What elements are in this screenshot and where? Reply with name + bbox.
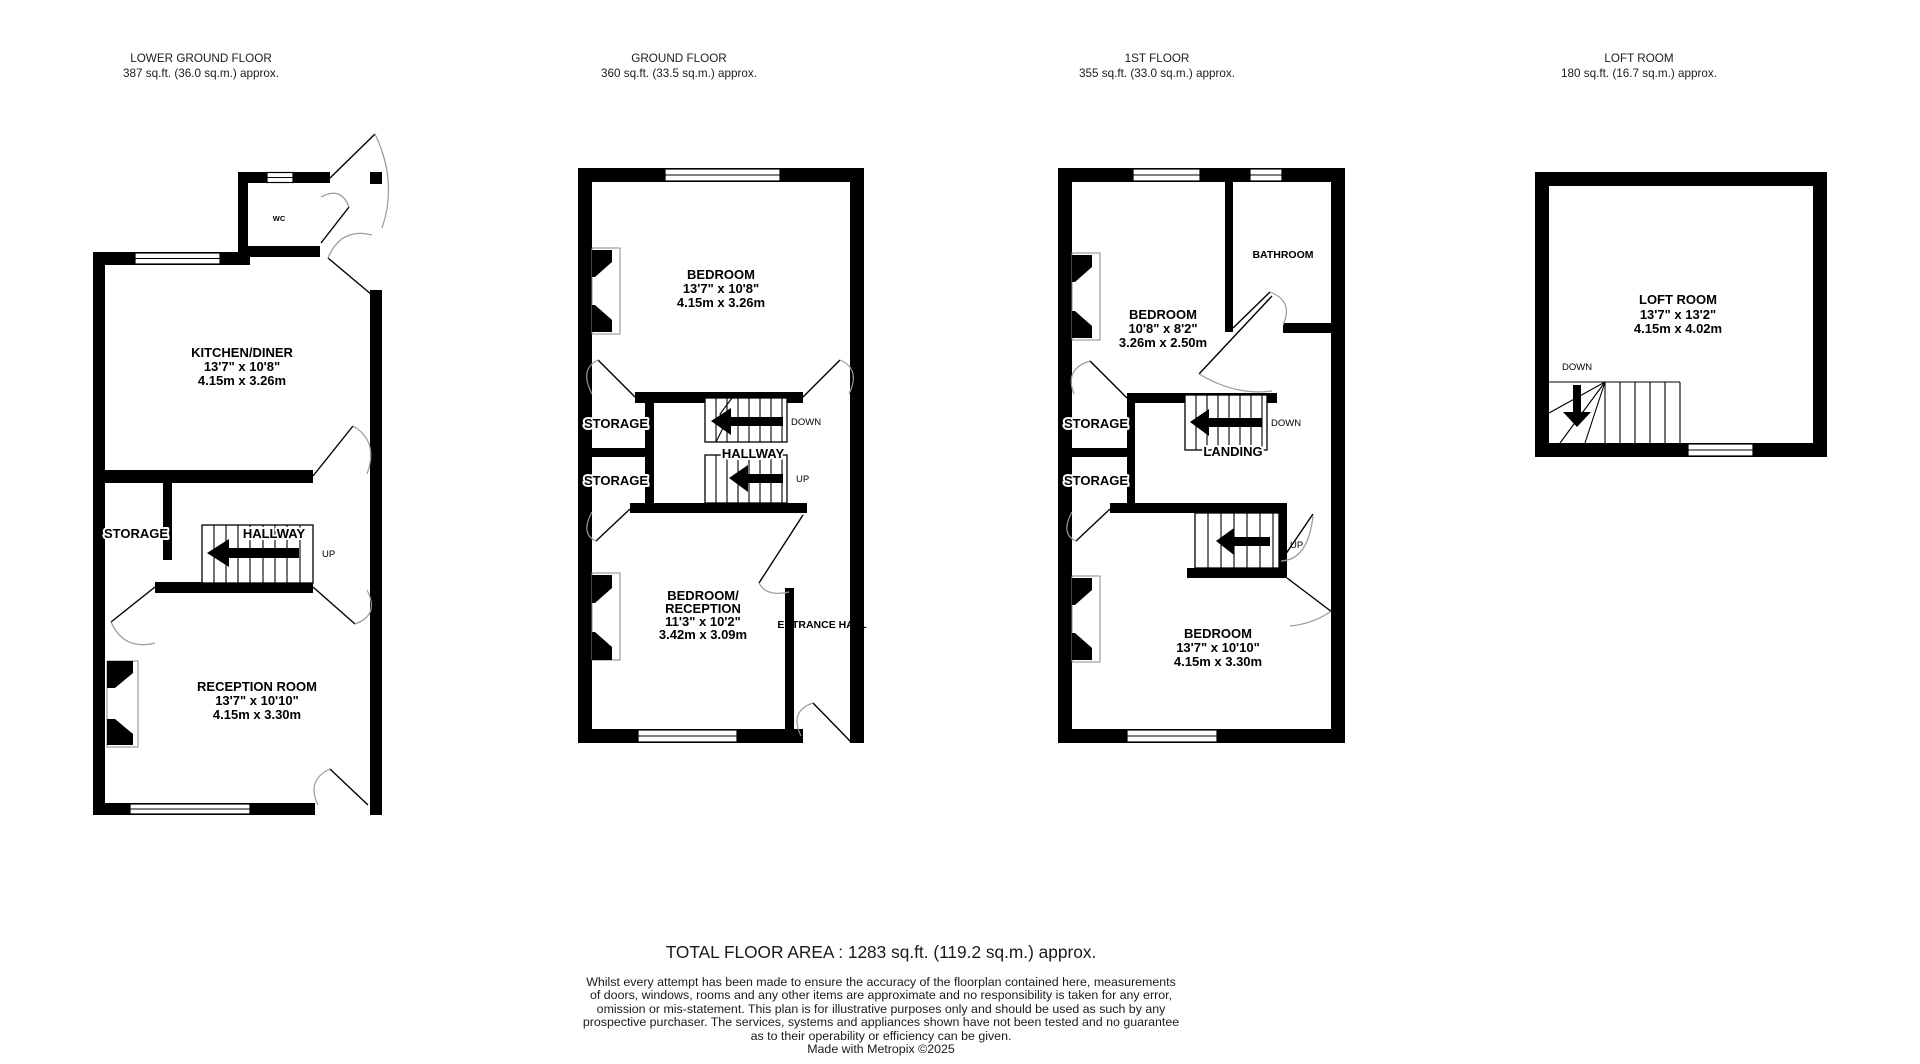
down-arrow-head [1563, 412, 1591, 427]
floor-name: LOWER GROUND FLOOR [123, 52, 279, 67]
room-dim-metric: 4.15m x 4.02m [1634, 321, 1722, 336]
floor-name: 1ST FLOOR [1079, 52, 1235, 67]
floorplan-ground: ENTRANCE HALL [570, 160, 880, 760]
chimney-breast [107, 661, 138, 747]
door-leaf [330, 134, 375, 178]
door-arc [328, 233, 372, 258]
door-leaf [1090, 361, 1127, 398]
chimney-breast [1072, 576, 1100, 662]
room-label-storage: STORAGE [584, 416, 648, 431]
door-leaf [598, 360, 635, 397]
floor-name: GROUND FLOOR [601, 52, 757, 67]
down-arrow [730, 417, 783, 426]
door-arc [1071, 361, 1090, 394]
room-dim-metric: 4.15m x 3.30m [1174, 654, 1262, 669]
disclaimer-line: omission or mis-statement. This plan is … [583, 1003, 1179, 1016]
door-arc [321, 193, 349, 207]
up-arrow [227, 548, 299, 558]
door-leaf [1199, 296, 1272, 374]
floorplan-loft: LOFT ROOM 13'7" x 13'2" 4.15m x 4.02m DO… [1530, 165, 1840, 465]
room-dim-metric: 4.15m x 3.26m [677, 295, 765, 310]
chimney-breast [592, 573, 620, 660]
door-leaf [111, 587, 155, 622]
chimney-breast [1072, 253, 1100, 340]
room-label-bedroom: BEDROOM [1129, 307, 1197, 322]
room-label-kitchen-diner: KITCHEN/DINER [191, 345, 293, 360]
direction-label-up: UP [796, 474, 809, 485]
door-arc [759, 583, 789, 593]
disclaimer-line: Whilst every attempt has been made to en… [583, 976, 1179, 989]
door-arc [314, 769, 330, 805]
room-dim-imperial: 10'8" x 8'2" [1128, 321, 1197, 336]
room-label-bathroom: BATHROOM [1252, 249, 1313, 261]
room-label-storage: STORAGE [1064, 473, 1128, 488]
disclaimer: Whilst every attempt has been made to en… [583, 976, 1179, 1056]
down-arrow [1208, 418, 1262, 427]
door-leaf [1076, 509, 1110, 541]
floor-area: 387 sq.ft. (36.0 sq.m.) approx. [123, 67, 279, 82]
stairs-up [705, 455, 787, 503]
direction-label-down: DOWN [791, 417, 821, 428]
door-arc [111, 622, 155, 645]
header-lower-ground-floor: LOWER GROUND FLOOR 387 sq.ft. (36.0 sq.m… [123, 52, 279, 81]
room-label-storage: STORAGE [584, 473, 648, 488]
room-dim-metric: 3.42m x 3.09m [659, 627, 747, 642]
door-arc [1199, 374, 1272, 392]
door-leaf [313, 587, 355, 624]
door-arc [797, 703, 813, 736]
room-label-hallway: HALLWAY [722, 446, 785, 461]
room-label-storage: STORAGE [104, 526, 168, 541]
room-label-bedroom: BEDROOM [687, 267, 755, 282]
room-dim-imperial: 13'7" x 13'2" [1640, 307, 1716, 322]
room-dim-imperial: 13'7" x 10'10" [1176, 640, 1260, 655]
room-dim-metric: 3.26m x 2.50m [1119, 335, 1207, 350]
metropix-credit: Made with Metropix ©2025 [583, 1043, 1179, 1056]
door-leaf [759, 515, 803, 583]
direction-label-down: DOWN [1562, 362, 1592, 373]
door-arc [1290, 612, 1330, 626]
stairs-down [705, 398, 787, 442]
stairs-up [1195, 513, 1279, 568]
total-floor-area: TOTAL FLOOR AREA : 1283 sq.ft. (119.2 sq… [666, 942, 1097, 963]
room-label-hallway: HALLWAY [243, 526, 306, 541]
door-leaf [1233, 292, 1270, 328]
room-label-loft: LOFT ROOM [1639, 292, 1717, 307]
room-dim-imperial: 13'7" x 10'8" [683, 281, 759, 296]
door-leaf [596, 509, 630, 541]
direction-label-up: UP [322, 549, 335, 560]
room-dim-imperial: 13'7" x 10'10" [215, 693, 299, 708]
room-label-reception: RECEPTION ROOM [197, 679, 317, 694]
door-leaf [330, 769, 368, 805]
room-dim-imperial: 13'7" x 10'8" [204, 359, 280, 374]
room-dim-metric: 4.15m x 3.26m [198, 373, 286, 388]
room-label-bedroom: BEDROOM [1184, 626, 1252, 641]
disclaimer-line: of doors, windows, rooms and any other i… [583, 989, 1179, 1002]
floor-area: 355 sq.ft. (33.0 sq.m.) approx. [1079, 67, 1235, 82]
door-arc [353, 426, 371, 474]
stairs-down [1185, 395, 1267, 450]
door-leaf [803, 360, 840, 397]
door-leaf [813, 703, 851, 742]
door-arc [355, 590, 371, 624]
down-arrow [1573, 385, 1581, 412]
direction-label-up: UP [1290, 540, 1303, 551]
room-label-landing: LANDING [1203, 444, 1262, 459]
door-arc [1270, 292, 1286, 325]
room-dim-metric: 4.15m x 3.30m [213, 707, 301, 722]
chimney-breast [592, 248, 620, 334]
stairs-down [1549, 382, 1680, 443]
door-leaf [313, 426, 353, 476]
header-ground-floor: GROUND FLOOR 360 sq.ft. (33.5 sq.m.) app… [601, 52, 757, 81]
floor-area: 180 sq.ft. (16.7 sq.m.) approx. [1561, 67, 1717, 82]
floor-name: LOFT ROOM [1561, 52, 1717, 67]
floor-area: 360 sq.ft. (33.5 sq.m.) approx. [601, 67, 757, 82]
disclaimer-line: prospective purchaser. The services, sys… [583, 1016, 1179, 1029]
direction-label-down: DOWN [1271, 418, 1301, 429]
floorplan-page: LOWER GROUND FLOOR 387 sq.ft. (36.0 sq.m… [0, 0, 1920, 1064]
up-arrow [747, 474, 783, 483]
floorplan-lower-ground: WC KITCHEN/DINER 13'7" x 10'8" 4.15m x 3… [85, 110, 395, 830]
header-1st-floor: 1ST FLOOR 355 sq.ft. (33.0 sq.m.) approx… [1079, 52, 1235, 81]
room-label-wc: WC [273, 214, 286, 223]
door-leaf [328, 258, 372, 295]
windows [1688, 444, 1753, 456]
header-loft-room: LOFT ROOM 180 sq.ft. (16.7 sq.m.) approx… [1561, 52, 1717, 81]
door-leaf [1287, 578, 1332, 612]
floorplan-1st: BATHROOM BEDROOM 10'8" x 8'2" 3.26m x 2.… [1050, 160, 1360, 760]
disclaimer-line: as to their operability or efficiency ca… [583, 1030, 1179, 1043]
up-arrow [1232, 537, 1270, 546]
room-label-storage: STORAGE [1064, 416, 1128, 431]
